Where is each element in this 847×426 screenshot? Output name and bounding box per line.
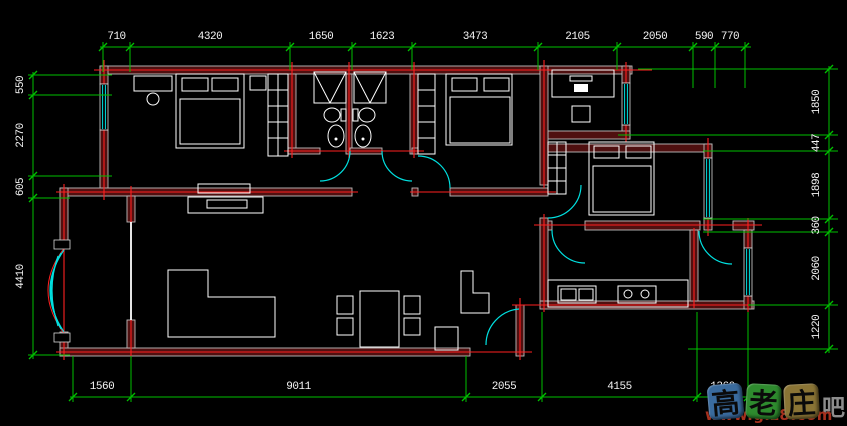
dim-label-top-6: 2050 (643, 31, 667, 43)
dim-label-right-3: 360 (811, 216, 823, 234)
watermark-tile-1: 高 (707, 383, 745, 421)
cad-floor-plan-canvas: 7104320165016233473210520505907701560901… (0, 0, 847, 426)
entry-step (461, 271, 489, 313)
sofa (168, 270, 275, 337)
dim-label-right-2: 1898 (811, 173, 823, 197)
door-bathroom1 (320, 151, 350, 181)
furniture-bedroom2 (418, 74, 512, 154)
kitchen-sink (558, 286, 596, 303)
dim-label-top-1: 4320 (198, 31, 222, 43)
door-kitchen (552, 230, 585, 263)
dim-label-bottom-0: 1560 (90, 381, 114, 393)
window-bedroom3-right (704, 158, 712, 218)
dim-label-top-4: 3473 (463, 31, 487, 43)
dim-label-top-3: 1623 (370, 31, 394, 43)
dim-label-right-0: 1850 (811, 90, 823, 114)
dim-label-left-2: 605 (15, 178, 27, 196)
dim-label-left-0: 550 (15, 76, 27, 94)
dim-label-right-4: 2060 (811, 256, 823, 280)
dim-label-top-5: 2105 (565, 31, 589, 43)
walls (60, 66, 754, 356)
wardrobe-bedroom1 (268, 74, 288, 156)
kitchen-stove (618, 286, 656, 303)
dim-label-top-7: 590 (695, 31, 713, 43)
axis-lines (56, 60, 772, 360)
watermark-tile-2: 老 (745, 383, 782, 420)
window-bedroom1-left (100, 84, 108, 130)
window-balcony-right (744, 248, 752, 296)
window-study-right (622, 83, 630, 125)
dim-label-left-3: 4410 (15, 264, 27, 288)
fixtures-bathroom2 (353, 72, 386, 147)
furniture-living-dining (168, 184, 489, 350)
furniture-bedroom3 (548, 142, 654, 215)
bay-window (48, 240, 70, 342)
dimension-annotations: 7104320165016233473210520505907701560901… (15, 31, 838, 402)
dim-label-bottom-1: 9011 (286, 381, 311, 393)
watermark: 高 老 庄 吧 www.glz8.com (705, 384, 845, 424)
doors (131, 151, 732, 345)
door-bathroom2 (382, 151, 412, 181)
furniture-bedroom1 (134, 74, 288, 156)
floor-plan-drawing: 7104320165016233473210520505907701560901… (0, 0, 847, 426)
dim-label-right-5: 1220 (811, 315, 823, 339)
watermark-tile-3: 庄 (783, 383, 820, 420)
door-bedroom2 (418, 156, 450, 188)
fixtures-bathroom1 (314, 72, 346, 147)
dim-label-bottom-2: 2055 (492, 381, 516, 393)
wardrobe-bedroom2 (418, 74, 435, 154)
furniture-study (552, 70, 614, 122)
dim-label-top-8: 770 (721, 31, 739, 43)
door-balcony (699, 231, 732, 264)
dining-set (337, 291, 420, 347)
dim-label-left-1: 2270 (15, 123, 27, 147)
shoe-cabinet (435, 327, 458, 350)
dim-label-right-1: 447 (811, 134, 823, 152)
dim-label-top-2: 1650 (309, 31, 333, 43)
dim-label-bottom-3: 4155 (607, 381, 631, 393)
dim-label-top-0: 710 (107, 31, 125, 43)
door-entry (486, 309, 519, 345)
door-bedroom3 (548, 185, 581, 218)
